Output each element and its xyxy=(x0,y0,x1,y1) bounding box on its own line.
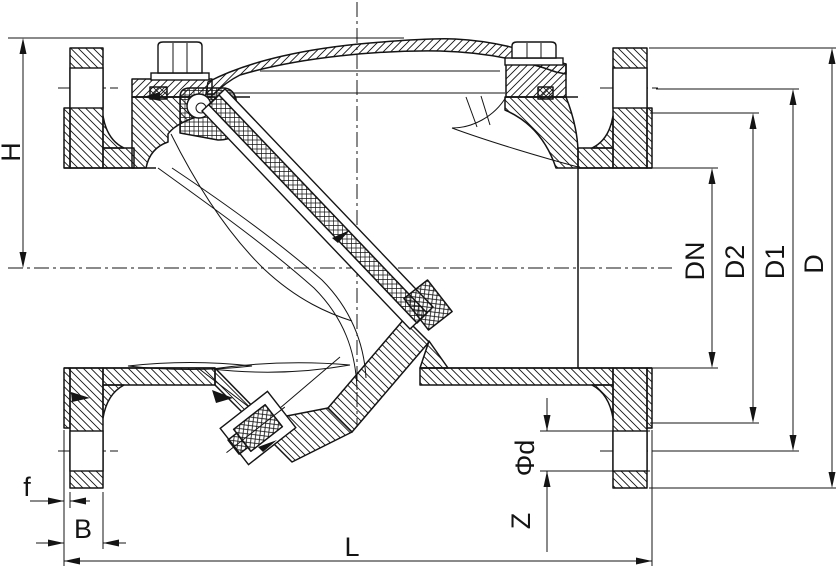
fillet xyxy=(592,385,613,418)
dim-label-D2: D2 xyxy=(720,245,750,280)
dimension-L: L xyxy=(64,430,652,566)
stud-nut-group xyxy=(212,389,299,471)
bolt-hole xyxy=(70,68,103,108)
dim-label-DN: DN xyxy=(680,242,710,281)
disc-arm-assembly xyxy=(71,89,452,471)
bolt-hole xyxy=(70,431,103,471)
seat-ring xyxy=(328,318,429,432)
fillet xyxy=(592,116,613,148)
bolt-hole xyxy=(613,431,647,471)
dim-label-Z: Z xyxy=(506,513,536,530)
dim-label-D1: D1 xyxy=(760,245,790,280)
cover-bolt-left xyxy=(151,42,209,80)
dim-label-B: B xyxy=(74,514,92,544)
fillet xyxy=(103,385,124,418)
dim-label-D: D xyxy=(799,254,829,274)
dim-label-f: f xyxy=(23,472,31,502)
cover-inner-lines xyxy=(214,71,505,93)
disc-stem-slab xyxy=(209,95,427,323)
hex-head xyxy=(158,42,202,73)
fillet xyxy=(103,116,124,148)
washer xyxy=(505,58,563,65)
bolt-hole xyxy=(613,68,647,108)
dim-label-L: L xyxy=(344,532,359,562)
valve-technical-drawing: H f B L Φd Z xyxy=(0,0,838,568)
dim-label-H: H xyxy=(0,142,26,162)
hex-head xyxy=(512,42,556,58)
washer xyxy=(151,73,209,80)
gasket-right xyxy=(538,87,553,99)
cover-bolt-right xyxy=(505,42,563,65)
dim-label-phi-d: Φd xyxy=(510,440,540,477)
